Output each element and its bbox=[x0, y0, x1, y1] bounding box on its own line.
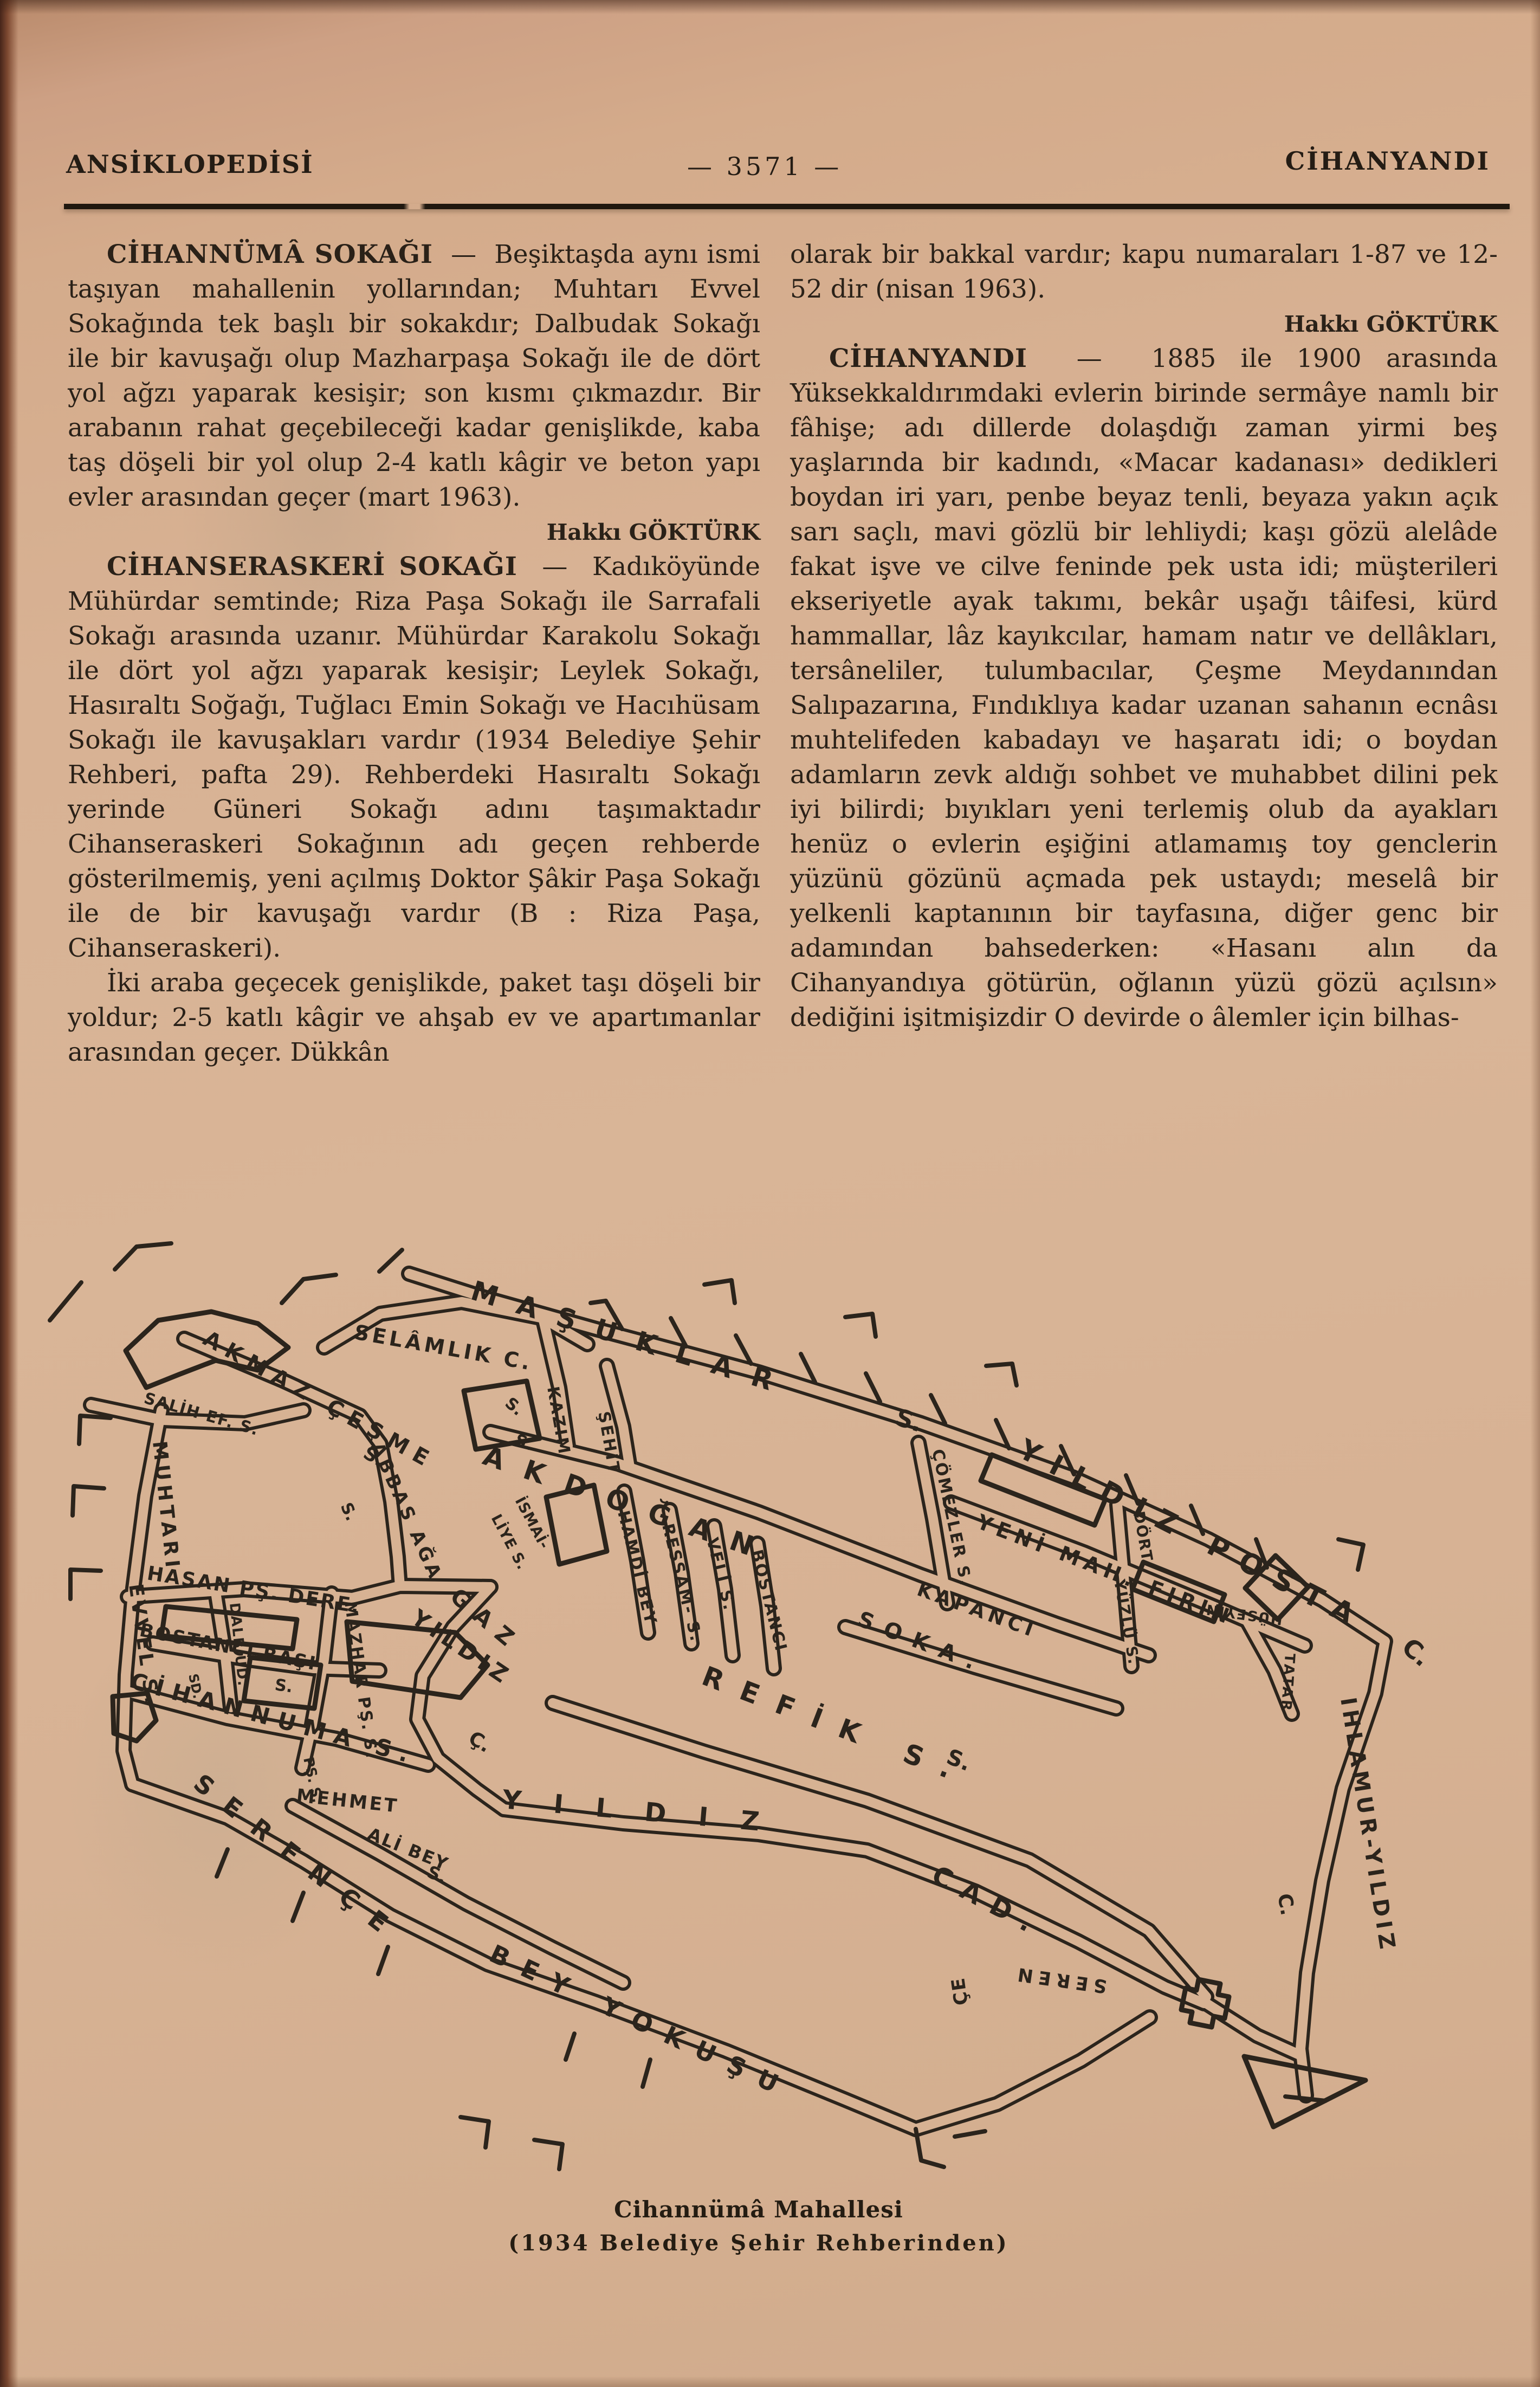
map-road bbox=[461, 2117, 489, 2147]
map-road bbox=[704, 1280, 735, 1303]
map-road bbox=[566, 2034, 574, 2060]
map-road bbox=[378, 1947, 388, 1974]
encyclopedia-page: { "page": { "header": { "left": "ANSİKLO… bbox=[0, 0, 1540, 2387]
map-street-label: SEREN bbox=[1011, 1963, 1108, 1997]
map-street-label: CAD. bbox=[927, 1860, 1049, 1944]
map-road bbox=[379, 1250, 402, 1272]
map-road bbox=[534, 2140, 562, 2169]
map-caption-source: (1934 Belediye Şehir Rehberinden) bbox=[0, 2230, 1517, 2256]
map-street-label: S. bbox=[337, 1500, 361, 1524]
map-road bbox=[50, 1282, 81, 1320]
map-street-label: C. bbox=[1396, 1632, 1437, 1672]
map-road bbox=[115, 1243, 171, 1269]
map-road bbox=[643, 2060, 650, 2087]
map-road bbox=[70, 1570, 101, 1599]
map-road bbox=[79, 1416, 111, 1444]
map-road bbox=[217, 1849, 228, 1876]
map-caption: Cihannümâ Mahallesi (1934 Belediye Şehir… bbox=[0, 2196, 1517, 2256]
map-street-label: BEY YOKUŞU bbox=[485, 1939, 797, 2105]
map-road bbox=[293, 1893, 303, 1921]
map-street-label: CİHANNUMA S. bbox=[127, 1667, 420, 1770]
map-street-label: S. bbox=[274, 1675, 294, 1696]
map-road bbox=[1338, 1539, 1363, 1570]
map-street-label: Ç. bbox=[465, 1727, 495, 1757]
map-road bbox=[1206, 2003, 1300, 2055]
map-road bbox=[845, 1314, 876, 1337]
map-road bbox=[282, 1275, 336, 1303]
map-street-label: C. bbox=[1273, 1892, 1298, 1917]
map-caption-title: Cihannümâ Mahallesi bbox=[0, 2196, 1517, 2223]
district-map: SELÂMLIK C.MAŞUKLARS.AKMAZ ÇEŞMES.S.SALİ… bbox=[0, 0, 1540, 2387]
map-street-label: TATAR bbox=[1277, 1653, 1298, 1714]
map-road bbox=[866, 1373, 880, 1402]
map-street-label: ÇE bbox=[947, 1976, 973, 2007]
map-road bbox=[955, 2131, 985, 2137]
map-road bbox=[986, 1364, 1017, 1385]
map-street-label: SELÂMLIK C. bbox=[352, 1320, 535, 1375]
map-street-label: S. bbox=[501, 1394, 527, 1420]
map-street-label: BOSTANCI bbox=[747, 1547, 791, 1654]
map-road bbox=[1285, 2096, 1325, 2101]
map-street-label: REFİK S. bbox=[698, 1660, 975, 1791]
map-street-label: MUHTARI bbox=[148, 1440, 184, 1573]
map-road bbox=[73, 1486, 104, 1515]
